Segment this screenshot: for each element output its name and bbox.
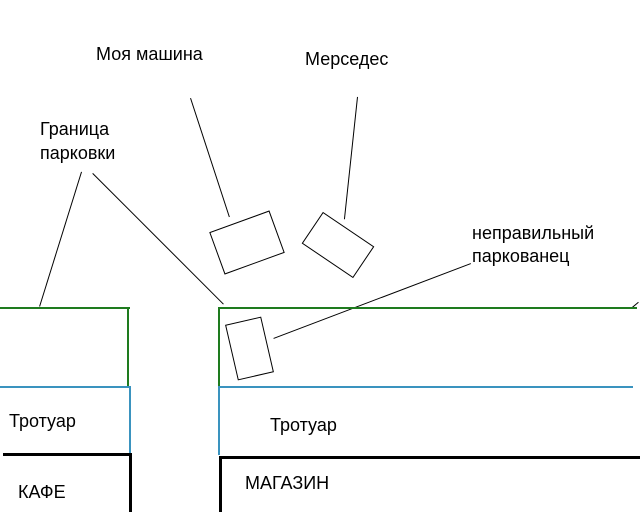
label-cafe: КАФЕ (18, 482, 66, 502)
parking-boundary-left-side-line (127, 307, 129, 388)
sidewalk-right-side-line (218, 386, 220, 455)
pointer-line-my-car (190, 98, 230, 217)
label-shop: МАГАЗИН (245, 473, 329, 493)
pointer-line-boundary-left (39, 172, 82, 307)
pointer-line-wrong-parker (273, 263, 471, 339)
label-wrong-parker: неправильный паркованец (472, 222, 594, 268)
parking-boundary-left-top-line (0, 307, 130, 309)
label-sidewalk-right: Тротуар (270, 415, 337, 435)
label-sidewalk-left: Тротуар (9, 411, 76, 431)
shop-top-line (219, 456, 640, 459)
cafe-top-line (3, 453, 132, 456)
parking-boundary-right-top-line (218, 307, 637, 309)
label-parking-boundary: Граница парковки (40, 117, 115, 165)
mercedes-rect (302, 212, 375, 278)
pointer-line-mercedes (344, 97, 358, 219)
parking-boundary-right-side-line (218, 307, 220, 388)
label-my-car: Моя машина (96, 44, 203, 64)
paint-canvas: Моя машина Мерседес Граница парковки неп… (0, 0, 640, 512)
wrong-parker-rect (225, 317, 274, 381)
sidewalk-left-side-line (129, 386, 131, 455)
my-car-rect (209, 210, 285, 274)
cafe-right-line (129, 453, 132, 512)
pointer-line-boundary-right (92, 173, 224, 305)
label-mercedes: Мерседес (305, 49, 388, 69)
sidewalk-left-top-line (0, 386, 131, 388)
sidewalk-right-top-line (218, 386, 633, 388)
shop-left-line (219, 456, 222, 512)
